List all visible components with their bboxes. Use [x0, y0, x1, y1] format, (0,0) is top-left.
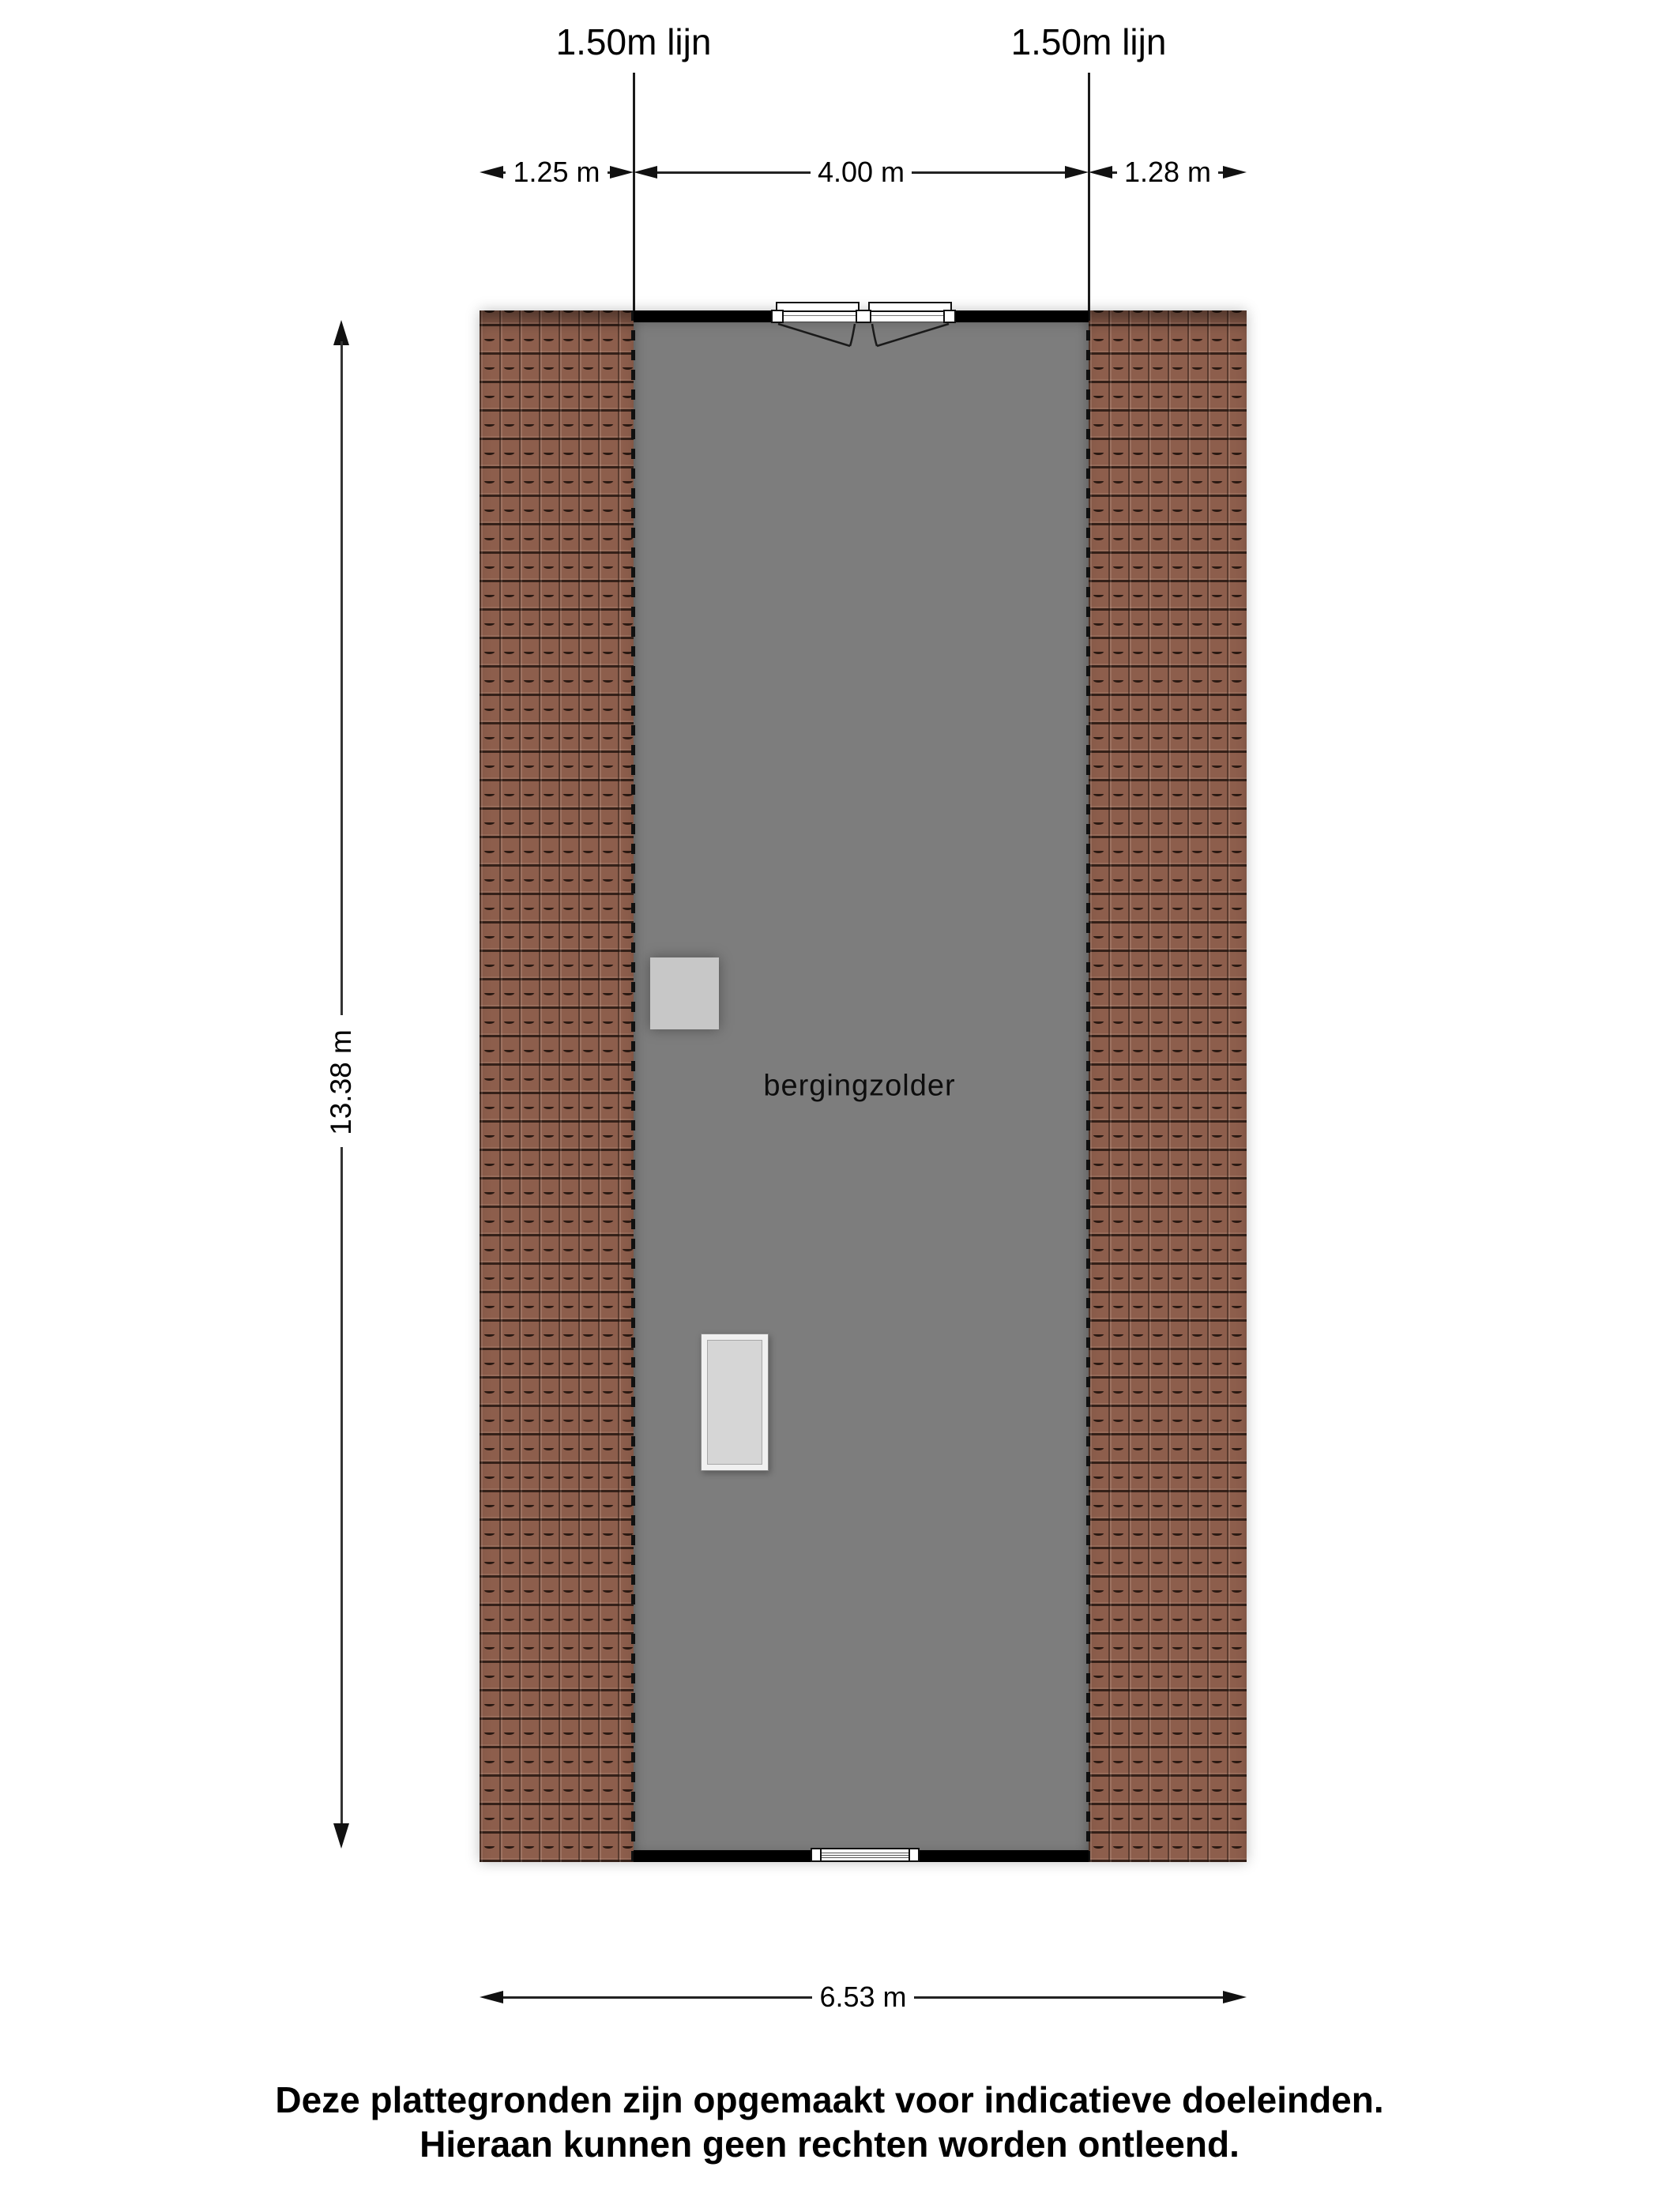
dim-label-height: 13.38 m — [325, 1029, 358, 1135]
arrow-right-icon — [1223, 1991, 1247, 2003]
dim-top-mid: 4.00 m — [634, 156, 1089, 188]
window-jamb-left — [771, 310, 784, 323]
dim-label: 1.28 m — [1117, 156, 1218, 189]
disclaimer: Deze plattegronden zijn opgemaakt voor i… — [0, 2078, 1659, 2166]
window-sash-left — [776, 302, 860, 312]
height-line-leader-left — [633, 73, 635, 310]
dim-line — [912, 171, 1065, 174]
skylight-inner-panel — [707, 1340, 762, 1465]
window-sash-right — [868, 302, 952, 312]
wall-bottom-right-segment — [916, 1850, 1089, 1862]
dim-top-right: 1.28 m — [1089, 156, 1247, 188]
height-line-dashed-right — [1086, 310, 1090, 1862]
window-jamb-center — [856, 310, 871, 323]
window-bottom-jamb-left — [811, 1848, 822, 1862]
arrow-right-icon — [1223, 166, 1247, 179]
arrow-right-icon — [1065, 166, 1089, 179]
dim-line-vertical — [340, 1147, 343, 1826]
height-line-label-left: 1.50m lijn — [556, 21, 712, 63]
window-jamb-right — [943, 310, 956, 323]
dim-label: 1.25 m — [506, 156, 607, 189]
dim-label: 4.00 m — [811, 156, 912, 189]
window-glass — [817, 1851, 913, 1859]
roof-tiles-left — [480, 310, 634, 1862]
arrow-left-icon — [480, 1991, 503, 2003]
arrow-left-icon — [1089, 166, 1112, 179]
floorplan-drawing: bergingzolder — [480, 310, 1247, 1862]
disclaimer-line-2: Hieraan kunnen geen rechten worden ontle… — [0, 2122, 1659, 2166]
wall-top-right-segment — [954, 310, 1089, 322]
wall-bottom-left-segment — [634, 1850, 814, 1862]
arrow-left-icon — [480, 166, 503, 179]
dim-line — [657, 171, 811, 174]
dim-line-vertical — [340, 341, 343, 1015]
disclaimer-line-1: Deze plattegronden zijn opgemaakt voor i… — [0, 2078, 1659, 2122]
dim-label: 6.53 m — [812, 1981, 913, 2014]
arrow-down-icon — [333, 1823, 349, 1849]
arrow-left-icon — [634, 166, 657, 179]
dim-line — [914, 1996, 1223, 1999]
window-swing-arcs-icon — [773, 322, 954, 355]
dim-top-left: 1.25 m — [480, 156, 634, 188]
height-line-leader-right — [1088, 73, 1090, 310]
wall-top-left-segment — [634, 310, 773, 322]
roof-tiles-right — [1089, 310, 1247, 1862]
room-label: bergingzolder — [763, 1070, 955, 1104]
height-line-dashed-left — [631, 310, 635, 1862]
window-bottom — [814, 1848, 916, 1862]
skylight-hatch — [701, 1334, 769, 1471]
arrow-right-icon — [610, 166, 634, 179]
floorplan-page: 1.50m lijn 1.50m lijn 1.25 m 4.00 m 1.28… — [0, 0, 1659, 2212]
window-bottom-jamb-right — [908, 1848, 920, 1862]
dim-line — [503, 1996, 812, 1999]
dim-bottom-width: 6.53 m — [480, 1981, 1247, 2013]
height-line-label-right: 1.50m lijn — [1011, 21, 1167, 63]
chimney-block — [650, 957, 719, 1029]
